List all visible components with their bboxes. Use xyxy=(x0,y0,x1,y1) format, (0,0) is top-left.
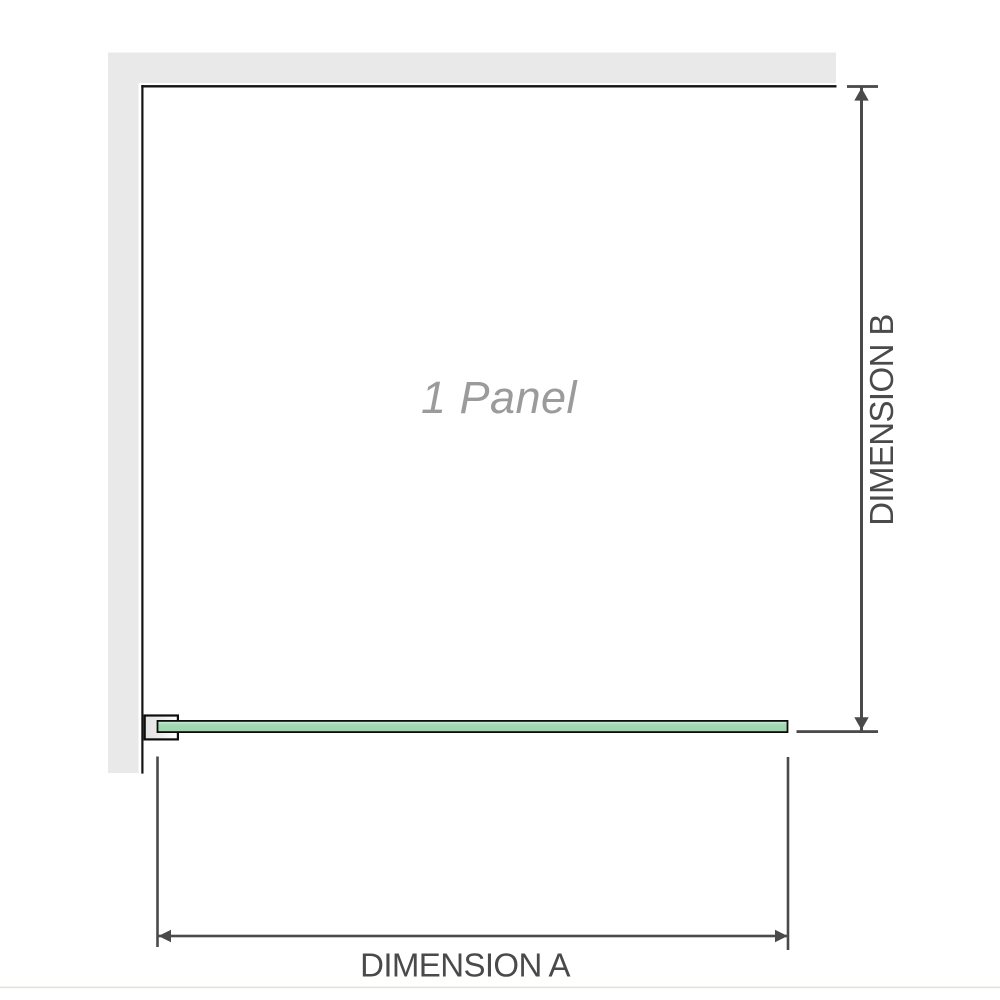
svg-text:DIMENSION B: DIMENSION B xyxy=(863,314,900,526)
svg-text:1 Panel: 1 Panel xyxy=(421,372,579,423)
svg-text:DIMENSION A: DIMENSION A xyxy=(360,946,570,983)
